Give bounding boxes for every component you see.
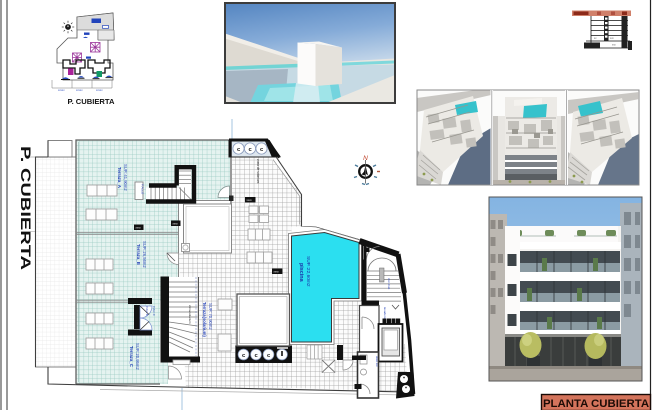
- svg-text:Terraza(solarium): Terraza(solarium): [202, 302, 207, 337]
- svg-text:SUP.:20,95m2: SUP.:20,95m2: [135, 343, 140, 370]
- svg-text:Terraza_C: Terraza_C: [129, 346, 134, 368]
- svg-text:zona solarium: zona solarium: [188, 305, 192, 324]
- svg-text:P. CUBIERTA: P. CUBIERTA: [18, 146, 33, 270]
- svg-text:xxxxx: xxxxx: [58, 89, 65, 92]
- svg-text:lavadero: lavadero: [383, 307, 387, 319]
- svg-text:xxxx: xxxx: [247, 199, 253, 202]
- svg-text:SUP.:22,60m2: SUP.:22,60m2: [305, 256, 311, 287]
- svg-text:xxxx: xxxx: [173, 223, 179, 226]
- svg-text:N: N: [363, 155, 368, 162]
- svg-text:Terraza_B: Terraza_B: [136, 244, 141, 265]
- svg-text:SUP.:70,90m2: SUP.:70,90m2: [208, 303, 213, 330]
- svg-text:SUP.:41,90m2: SUP.:41,90m2: [123, 164, 128, 191]
- svg-text:xxxx: xxxx: [274, 271, 280, 274]
- svg-text:xxxx: xxxx: [136, 227, 142, 230]
- svg-text:P.Acc.B: P.Acc.B: [141, 184, 145, 194]
- svg-text:P.Acc.B: P.Acc.B: [145, 306, 149, 316]
- svg-text:xxxxx: xxxxx: [76, 89, 83, 92]
- svg-text:PLANTA CUBIERTA: PLANTA CUBIERTA: [543, 398, 649, 410]
- svg-text:P. CUBIERTA: P. CUBIERTA: [68, 97, 115, 106]
- svg-text:xxxxx: xxxxx: [96, 89, 103, 92]
- svg-text:aseo.sol: aseo.sol: [375, 356, 379, 367]
- svg-text:P.Acc.C: P.Acc.C: [152, 306, 156, 316]
- svg-text:piscina: piscina: [298, 263, 304, 283]
- svg-text:Acc.Cub: Acc.Cub: [387, 278, 391, 290]
- svg-text:Terraza_A: Terraza_A: [117, 167, 122, 189]
- svg-text:zona de solarium: zona de solarium: [256, 159, 260, 184]
- svg-text:SUP.:26,56m2: SUP.:26,56m2: [142, 241, 147, 268]
